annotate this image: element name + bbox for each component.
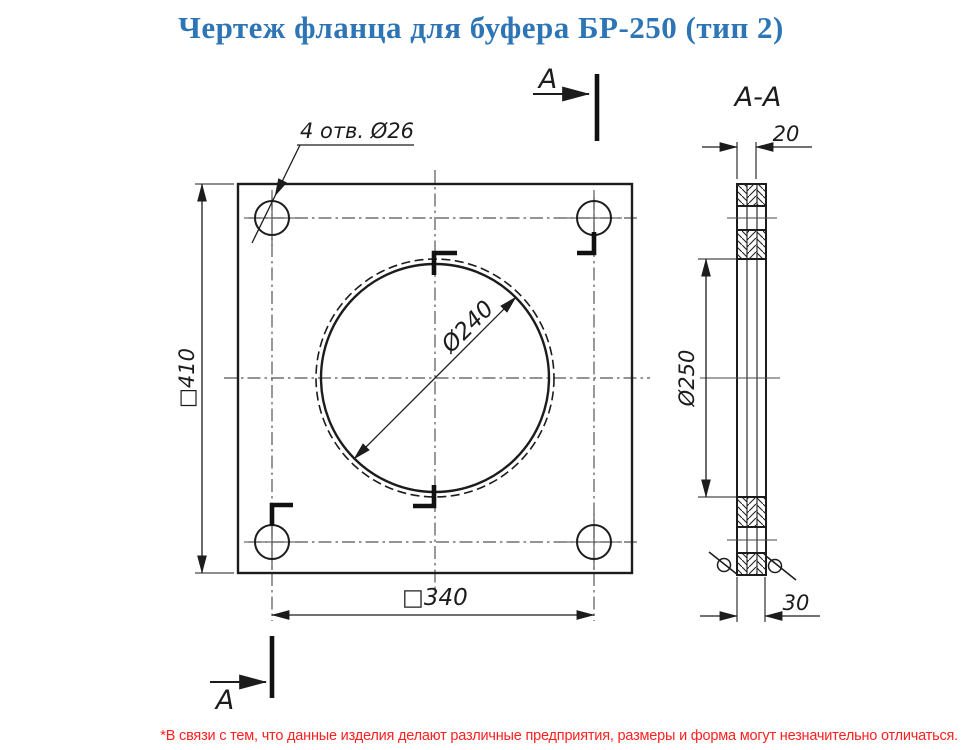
footnote: *В связи с тем, что данные изделия делаю…: [160, 728, 958, 744]
thickness-label: 20: [773, 122, 800, 146]
thickness-dimension: 20: [702, 122, 812, 179]
front-view: Ø240 □410 □340 4 отв. Ø26: [175, 64, 650, 716]
bore-dimension-label: Ø240: [436, 296, 499, 359]
bolt-spacing-dimension: □340: [272, 585, 594, 615]
holes-callout-label: 4 отв. Ø26: [300, 119, 414, 143]
bolt-spacing-label: □340: [402, 585, 468, 611]
technical-drawing: Ø240 □410 □340 4 отв. Ø26: [0, 0, 962, 750]
collar-diameter-label: Ø250: [675, 350, 699, 408]
holes-callout: 4 отв. Ø26: [252, 119, 414, 243]
drawing-page: Чертеж фланца для буфера БР-250 (тип 2): [0, 0, 962, 750]
outer-size-label: □410: [175, 348, 199, 408]
section-letter-bottom: А: [214, 685, 234, 716]
section-letter-top: А: [537, 64, 557, 95]
section-view: А-А: [675, 82, 820, 622]
section-title: А-А: [733, 82, 782, 113]
total-thickness-label: 30: [783, 591, 810, 615]
section-hatching: [737, 184, 766, 575]
total-thickness-dimension: 30: [700, 577, 820, 622]
section-cut-marks: А А: [210, 64, 597, 716]
centerlines: [224, 170, 650, 621]
